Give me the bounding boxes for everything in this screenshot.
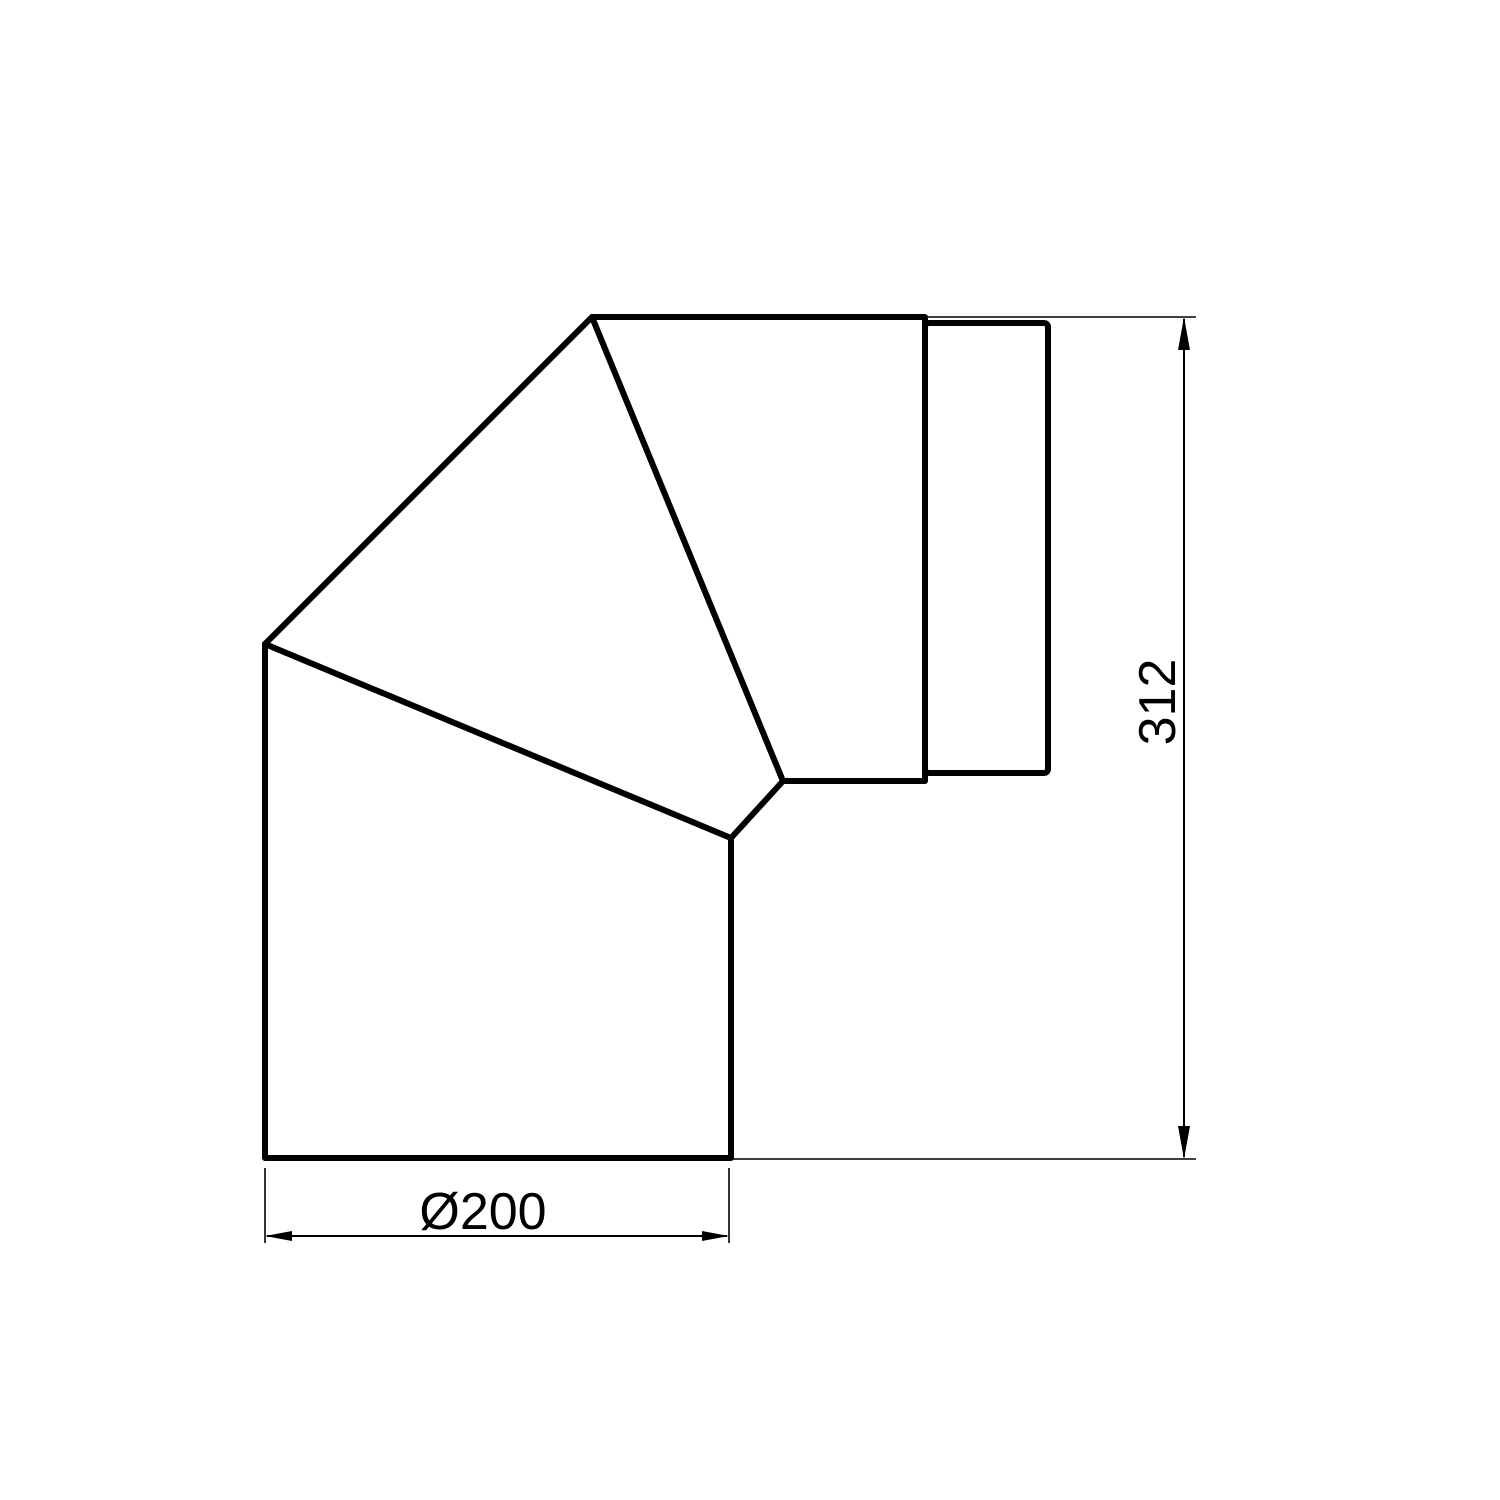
pipe-elbow-technical-drawing: 312 Ø200	[0, 0, 1500, 1500]
height-dimension-label: 312	[1129, 659, 1187, 746]
connector-collar	[925, 323, 1048, 773]
dimension-arrow-down-icon	[1178, 1126, 1190, 1159]
dimension-arrow-up-icon	[1178, 317, 1190, 350]
drawing-page: 312 Ø200	[0, 0, 1500, 1500]
diameter-dimension-label: Ø200	[419, 1183, 546, 1241]
dimension-arrow-right-icon	[702, 1231, 729, 1241]
dimension-arrow-left-icon	[265, 1231, 292, 1241]
diameter-dimension: Ø200	[265, 1168, 729, 1243]
